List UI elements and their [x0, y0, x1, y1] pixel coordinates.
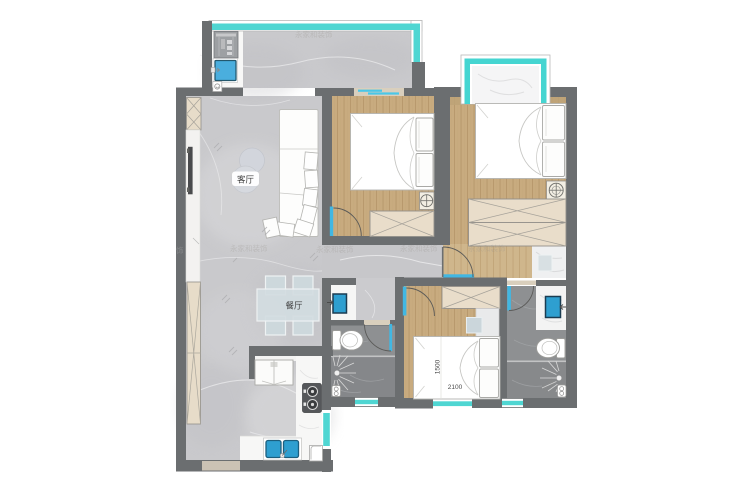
svg-text:永家和装饰: 永家和装饰	[400, 243, 438, 253]
svg-text:永家和装饰: 永家和装饰	[295, 29, 333, 39]
svg-text:1500: 1500	[435, 359, 442, 374]
svg-text:2100: 2100	[448, 384, 463, 391]
svg-text:永家和装饰: 永家和装饰	[230, 243, 268, 253]
svg-text:客厅: 客厅	[237, 174, 255, 184]
svg-text:餐厅: 餐厅	[285, 301, 303, 311]
svg-text:饰: 饰	[176, 245, 184, 255]
svg-text:永家和装饰: 永家和装饰	[316, 244, 354, 254]
svg-text:永家和装饰: 永家和装饰	[468, 243, 506, 253]
